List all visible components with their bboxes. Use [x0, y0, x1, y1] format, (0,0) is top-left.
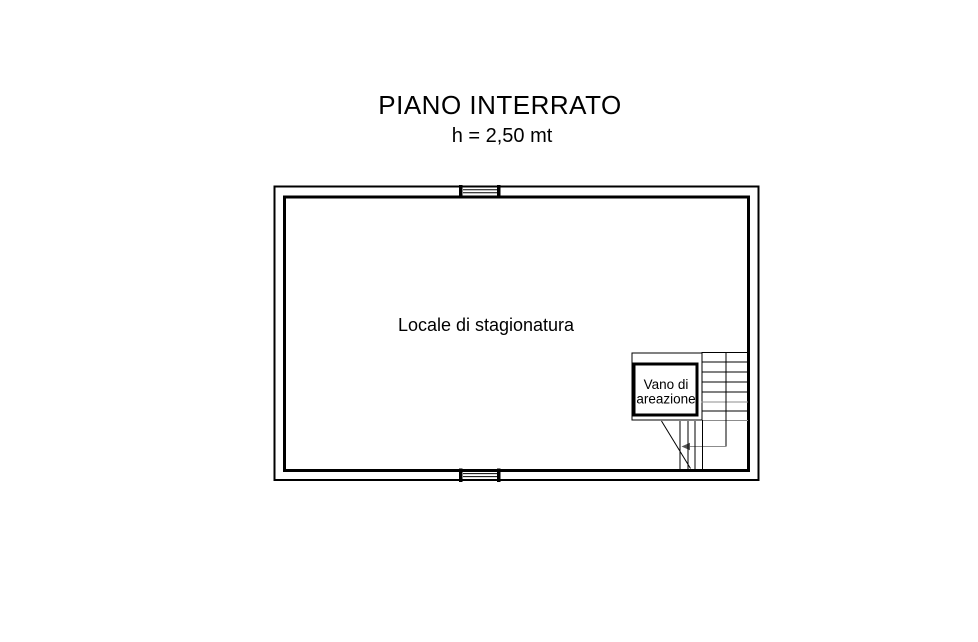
ventilation-shaft-label-line1: Vano di [644, 377, 689, 392]
stair-direction-arrow-icon [682, 443, 691, 450]
window-top-left-jamb [459, 185, 463, 199]
window-bottom-left-jamb [459, 469, 463, 483]
ventilation-shaft-box: Vano di areazione [632, 353, 702, 420]
window-top-right-jamb [497, 185, 501, 199]
ventilation-shaft-label-line2: areazione [636, 392, 695, 407]
floor-plan-page: PIANO INTERRATO h = 2,50 mt Locale di st… [0, 0, 978, 642]
window-bottom-right-jamb [497, 469, 501, 483]
plan-title: PIANO INTERRATO [378, 90, 621, 120]
room-label: Locale di stagionatura [398, 315, 575, 335]
plan-height-note: h = 2,50 mt [452, 125, 553, 147]
stair-upper-flight [702, 353, 749, 421]
stair-lower-flight [662, 420, 703, 469]
floor-plan-canvas: PIANO INTERRATO h = 2,50 mt Locale di st… [0, 0, 978, 642]
